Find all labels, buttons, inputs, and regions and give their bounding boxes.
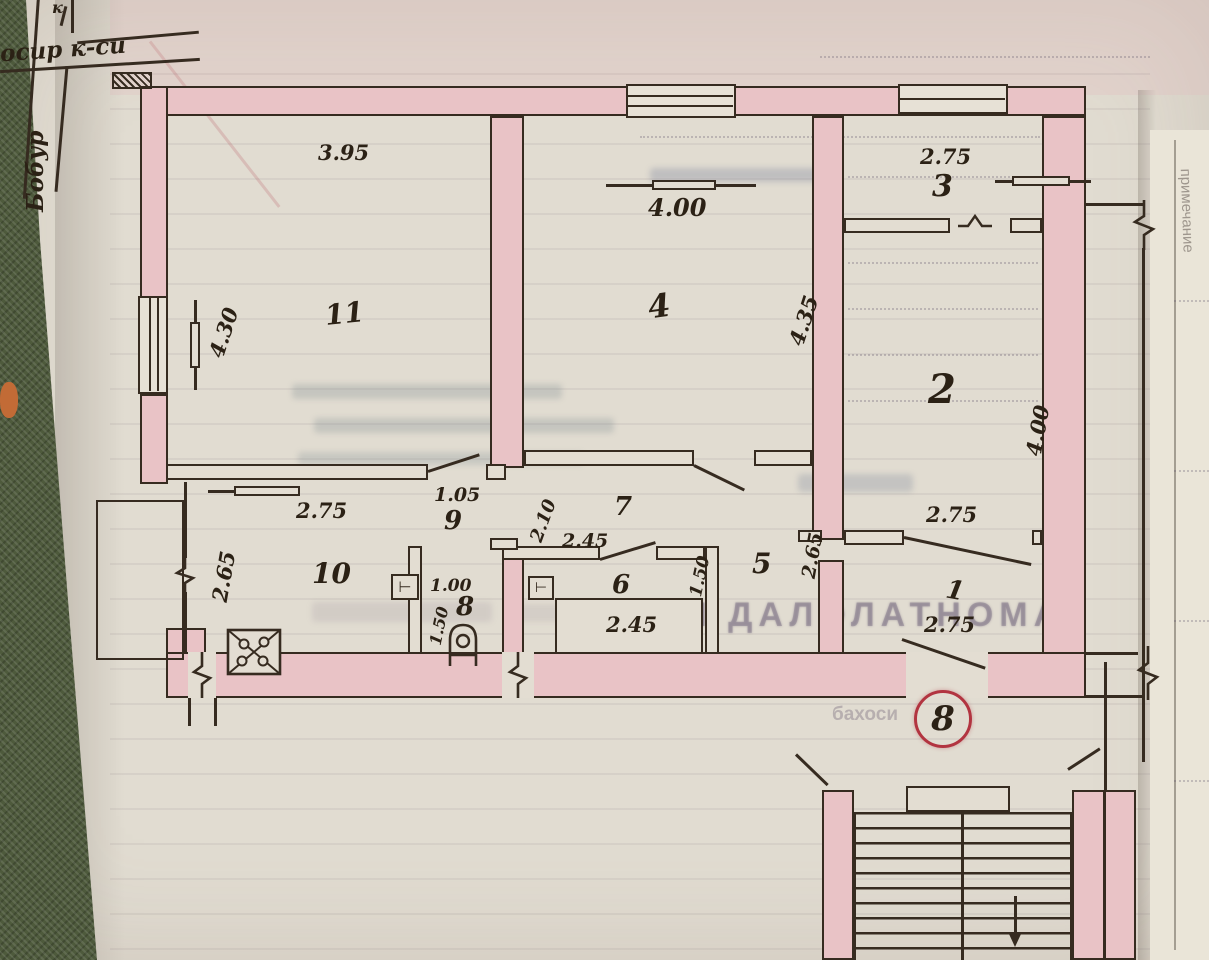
door-squiggle-icon-3-2 [958, 212, 992, 232]
plan-wall-10-8 [408, 546, 422, 654]
window-line [900, 98, 1005, 100]
room-label-4: 4 [646, 289, 673, 324]
window-icon-room3 [898, 84, 1008, 114]
porch-line-left [188, 698, 191, 726]
plan-wall-corridor-stub [490, 538, 518, 550]
dim-room1-door: 2.75 [924, 614, 975, 635]
stairs-center-divider [961, 812, 964, 960]
plan-wall-left-upper [140, 86, 168, 298]
room-label-8: 8 [456, 594, 474, 620]
plan-wall-left-lower [140, 394, 168, 484]
stove-icon [226, 628, 282, 676]
toilet-icon [447, 622, 479, 668]
underlying-sheet-table-line [1174, 140, 1176, 950]
room-label-3: 3 [932, 172, 953, 202]
stamp-badge: 8 [914, 690, 972, 748]
underlying-sheet-tick-2 [1174, 470, 1209, 472]
dotted-row-6 [848, 354, 1038, 356]
plan-wall-3-2-a [844, 218, 950, 233]
radiator-icon-a: ⊢ [391, 574, 419, 600]
dim-room4-top: 4.00 [648, 196, 706, 220]
fabric-orange-speck [0, 382, 18, 418]
room-label-10: 10 [312, 560, 351, 588]
wall-break-gap-entrance [188, 652, 216, 698]
window-icon-room4 [626, 84, 736, 118]
window-icon-room11-left [138, 296, 168, 394]
window-line [628, 95, 733, 97]
dotted-row-4 [848, 262, 1038, 264]
plan-wall-11-bottom-a [166, 464, 428, 480]
dim-wc8-top: 1.00 [430, 578, 471, 595]
plan-wall-5-1 [818, 560, 844, 654]
room-label-7: 7 [614, 494, 632, 520]
table-label-2: бахоси [832, 704, 898, 726]
wall-break-gap-middle [502, 652, 534, 698]
window-lens-room4 [652, 180, 716, 190]
plan-wall-2-1-b [1032, 530, 1042, 545]
underlying-sheet-tick-3 [1174, 620, 1209, 622]
balcony-outline [96, 500, 184, 660]
plan-wall-right [1042, 116, 1086, 662]
plan-wall-2-1-a [844, 530, 904, 545]
dotted-row-5 [848, 308, 1038, 310]
stair-shaft-left-line [1104, 662, 1107, 790]
stair-landing [906, 786, 1010, 812]
dim-hall9-door: 1.05 [434, 486, 480, 505]
street-vertical-line-right-upper [71, 0, 74, 33]
dim-corridor7-door: 2.45 [562, 532, 608, 551]
plan-wall-11-4 [490, 116, 524, 468]
room-label-2: 2 [928, 370, 956, 410]
room-label-6: 6 [612, 572, 630, 598]
plan-wall-3-2-b [1010, 218, 1042, 233]
kitchen-left-wall-b [184, 592, 187, 654]
plan-wall-11-bottom-b [486, 464, 506, 480]
stair-wall-right-divider [1103, 792, 1106, 958]
porch-line-right [214, 698, 217, 726]
radiator-icon-b: ⊢ [528, 576, 554, 600]
wall-break-icon-right-top [1132, 200, 1156, 250]
room-label-9: 9 [444, 508, 462, 534]
plan-wall-4-bottom-b [754, 450, 812, 466]
building-marker-hatch-icon [112, 72, 152, 89]
dim-room2-door: 2.75 [926, 504, 977, 525]
bottom-band-ext-top [1086, 652, 1138, 655]
dotted-row-1 [820, 56, 1150, 58]
underlying-sheet-tick-4 [1174, 780, 1209, 782]
stair-wall-left [822, 790, 854, 960]
room-label-11: 11 [324, 298, 366, 330]
dim-room3-top: 2.75 [920, 146, 971, 167]
plan-wall-4-right [812, 116, 844, 540]
window-line [149, 298, 151, 391]
faint-handwriting-smudge-2 [314, 418, 614, 433]
street-vertical-label: Бобур [24, 92, 47, 212]
wall-break-icon-balcony [174, 556, 196, 594]
plan-wall-8-6 [502, 556, 524, 654]
window-lens-room3 [1012, 176, 1070, 186]
north-label: к [52, 0, 63, 16]
window-lens-room11 [190, 322, 200, 368]
stamp-number: 8 [931, 702, 955, 736]
stair-arrow-head [1009, 934, 1021, 947]
window-lens-room10 [234, 486, 300, 496]
scanned-floor-plan-photo: примечание АШ ДАЛОЛАТНОМА Тиклаш бахоси … [0, 0, 1209, 960]
dim-room11-top: 3.95 [318, 142, 369, 163]
wall-break-icon-right-bottom [1136, 646, 1160, 700]
dim-bathtub: 2.45 [606, 614, 657, 635]
kitchen-left-wall-a [184, 482, 187, 558]
window-line [157, 298, 159, 391]
window-line [628, 105, 733, 107]
dim-room10-top: 2.75 [296, 500, 347, 521]
room-label-5: 5 [752, 550, 771, 578]
plan-wall-4-bottom-a [524, 450, 694, 466]
stair-arrow-icon [1014, 896, 1017, 938]
